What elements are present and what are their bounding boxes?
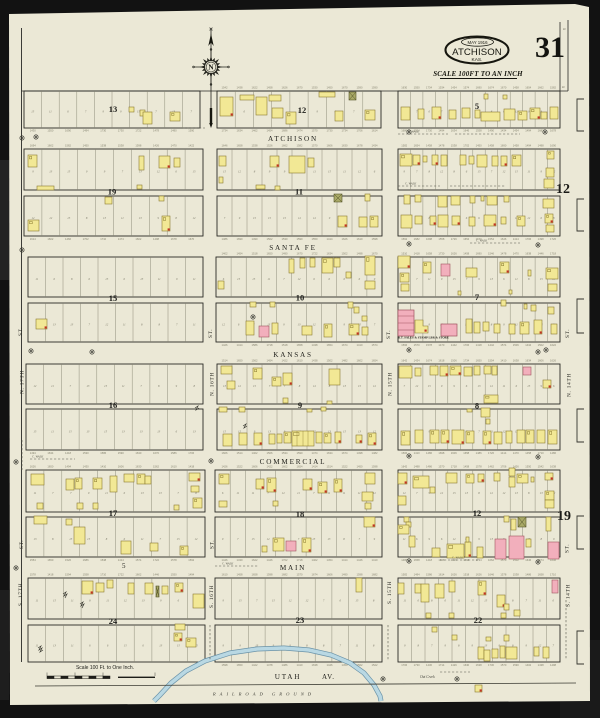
svg-text:12: 12 [358, 170, 362, 174]
svg-text:1654: 1654 [414, 144, 420, 148]
svg-text:1458: 1458 [525, 451, 531, 455]
svg-text:1678: 1678 [357, 144, 363, 148]
svg-text:12: 12 [453, 537, 457, 541]
svg-text:1626: 1626 [476, 573, 482, 577]
svg-text:1730: 1730 [438, 252, 444, 256]
svg-text:1726: 1726 [488, 451, 494, 455]
svg-text:1498: 1498 [463, 558, 469, 562]
svg-text:11: 11 [36, 644, 39, 648]
svg-text:11: 11 [141, 537, 144, 541]
svg-text:1674: 1674 [312, 573, 318, 577]
svg-text:12: 12 [373, 384, 377, 388]
svg-text:18: 18 [296, 509, 305, 519]
svg-text:1530: 1530 [312, 86, 318, 90]
svg-text:1658: 1658 [297, 343, 303, 347]
svg-text:1534: 1534 [282, 451, 288, 455]
svg-text:1486: 1486 [282, 663, 288, 667]
svg-text:1598: 1598 [222, 663, 228, 667]
svg-text:SCALE 100FT TO AN INCH: SCALE 100FT TO AN INCH [433, 70, 523, 78]
svg-text:1410: 1410 [357, 343, 363, 347]
svg-text:1458: 1458 [267, 86, 273, 90]
svg-text:1494: 1494 [83, 129, 89, 133]
svg-text:15: 15 [453, 491, 457, 495]
svg-text:1658: 1658 [252, 573, 258, 577]
svg-text:1730: 1730 [488, 663, 494, 667]
svg-text:1578: 1578 [30, 573, 36, 577]
svg-text:1610: 1610 [222, 573, 228, 577]
svg-text:1638: 1638 [312, 663, 318, 667]
svg-text:1502: 1502 [327, 359, 333, 363]
svg-text:1590: 1590 [297, 451, 303, 455]
svg-text:1486: 1486 [222, 237, 228, 241]
svg-text:1542: 1542 [222, 86, 228, 90]
svg-text:1506: 1506 [401, 451, 407, 455]
svg-text:12: 12 [490, 491, 494, 495]
svg-text:1410: 1410 [372, 558, 378, 562]
svg-text:1650: 1650 [47, 558, 53, 562]
svg-text:1730: 1730 [426, 129, 432, 133]
svg-text:13: 13 [103, 216, 107, 220]
svg-text:1502: 1502 [513, 558, 519, 562]
svg-text:1418: 1418 [476, 343, 482, 347]
svg-text:1590: 1590 [513, 663, 519, 667]
svg-text:1734: 1734 [342, 129, 348, 133]
svg-text:13: 13 [141, 491, 145, 495]
svg-text:1470: 1470 [513, 252, 519, 256]
svg-text:1690: 1690 [476, 252, 482, 256]
svg-text:1586: 1586 [171, 451, 177, 455]
svg-text:1434: 1434 [372, 144, 378, 148]
svg-text:1650: 1650 [237, 663, 243, 667]
svg-text:11: 11 [356, 644, 359, 648]
svg-text:12: 12 [124, 599, 128, 603]
svg-text:1574: 1574 [135, 558, 141, 562]
svg-text:1630: 1630 [342, 144, 348, 148]
svg-text:1574: 1574 [538, 558, 544, 562]
svg-text:1490: 1490 [488, 129, 494, 133]
svg-text:1470: 1470 [513, 451, 519, 455]
svg-text:15: 15 [358, 384, 362, 388]
svg-text:1630: 1630 [135, 465, 141, 469]
svg-text:12: 12 [49, 216, 53, 220]
svg-text:1610: 1610 [297, 359, 303, 363]
svg-text:1578: 1578 [171, 558, 177, 562]
svg-text:1626: 1626 [451, 252, 457, 256]
svg-text:1614: 1614 [30, 237, 36, 241]
svg-text:1438: 1438 [538, 663, 544, 667]
svg-text:1454: 1454 [327, 558, 333, 562]
svg-text:1682: 1682 [282, 573, 288, 577]
svg-text:11: 11 [122, 384, 125, 388]
svg-text:1422: 1422 [267, 465, 273, 469]
svg-text:1710: 1710 [100, 237, 106, 241]
svg-text:1462: 1462 [488, 465, 494, 469]
svg-text:1458: 1458 [426, 144, 432, 148]
svg-text:1430: 1430 [426, 663, 432, 667]
svg-text:1610: 1610 [357, 237, 363, 241]
svg-text:1654: 1654 [525, 86, 531, 90]
svg-text:12: 12 [556, 182, 570, 197]
svg-text:24: 24 [109, 616, 118, 626]
svg-text:1454: 1454 [267, 129, 273, 133]
svg-text:12: 12 [440, 491, 444, 495]
svg-text:22: 22 [474, 615, 483, 625]
svg-text:1402: 1402 [525, 663, 531, 667]
svg-text:13: 13 [122, 430, 126, 434]
svg-text:1490: 1490 [282, 252, 288, 256]
svg-text:1538: 1538 [451, 144, 457, 148]
svg-text:1518: 1518 [252, 252, 258, 256]
svg-text:1510: 1510 [401, 252, 407, 256]
svg-text:1630: 1630 [463, 663, 469, 667]
svg-text:15: 15 [104, 430, 108, 434]
svg-text:ST.: ST. [565, 329, 571, 338]
svg-text:15: 15 [67, 170, 71, 174]
svg-text:11: 11 [295, 187, 303, 197]
svg-text:S. 16TH: S. 16TH [209, 585, 215, 608]
svg-text:KAS.: KAS. [472, 57, 483, 63]
svg-text:13: 13 [53, 644, 57, 648]
svg-text:13: 13 [540, 491, 544, 495]
svg-text:13: 13 [159, 491, 163, 495]
svg-text:1434: 1434 [414, 359, 420, 363]
svg-text:1414: 1414 [327, 237, 333, 241]
svg-text:ST.: ST. [18, 327, 24, 336]
svg-text:ST.: ST. [565, 544, 571, 553]
svg-text:1654: 1654 [372, 359, 378, 363]
svg-text:1442: 1442 [488, 343, 494, 347]
svg-text:12: 12 [527, 216, 531, 220]
svg-text:13: 13 [49, 170, 53, 174]
svg-text:1626: 1626 [342, 237, 348, 241]
svg-text:1402: 1402 [222, 252, 228, 256]
svg-text:1706: 1706 [463, 343, 469, 347]
svg-text:1598: 1598 [372, 237, 378, 241]
svg-text:1722: 1722 [153, 558, 159, 562]
svg-text:1414: 1414 [342, 558, 348, 562]
svg-text:1626: 1626 [451, 573, 457, 577]
svg-text:12: 12 [282, 491, 286, 495]
svg-text:11: 11 [503, 384, 506, 388]
svg-text:1518: 1518 [463, 573, 469, 577]
svg-text:13: 13 [140, 277, 144, 281]
svg-text:N. 15TH: N. 15TH [388, 372, 394, 396]
svg-text:KANSAS: KANSAS [273, 351, 313, 359]
svg-text:1546: 1546 [488, 252, 494, 256]
svg-text:1474: 1474 [118, 237, 124, 241]
svg-text:1422: 1422 [252, 663, 258, 667]
svg-text:11: 11 [121, 216, 124, 220]
svg-text:13: 13 [140, 430, 144, 434]
svg-text:1490: 1490 [252, 237, 258, 241]
svg-text:1506: 1506 [267, 451, 273, 455]
svg-text:1630: 1630 [135, 451, 141, 455]
svg-text:1426: 1426 [222, 465, 228, 469]
svg-text:12: 12 [222, 323, 226, 327]
svg-text:1610: 1610 [171, 465, 177, 469]
svg-text:1550: 1550 [171, 573, 177, 577]
svg-text:1494: 1494 [30, 451, 36, 455]
svg-text:1706: 1706 [500, 465, 506, 469]
svg-text:11: 11 [36, 599, 39, 603]
svg-text:1450: 1450 [83, 144, 89, 148]
svg-text:1530: 1530 [83, 451, 89, 455]
svg-text:S. 17TH: S. 17TH [18, 583, 24, 606]
svg-text:1426: 1426 [222, 343, 228, 347]
svg-text:1658: 1658 [414, 558, 420, 562]
svg-text:RAILROAD GROUND: RAILROAD GROUND [212, 692, 315, 697]
svg-text:S. 15TH: S. 15TH [387, 581, 393, 604]
svg-text:1522: 1522 [372, 663, 378, 667]
svg-text:1670: 1670 [153, 451, 159, 455]
svg-text:1554: 1554 [488, 359, 494, 363]
svg-text:AV.: AV. [322, 673, 335, 681]
svg-text:15: 15 [177, 644, 181, 648]
svg-text:1502: 1502 [538, 343, 544, 347]
svg-text:1650: 1650 [237, 359, 243, 363]
svg-text:1622: 1622 [252, 86, 258, 90]
svg-text:1634: 1634 [47, 451, 53, 455]
svg-text:15: 15 [268, 216, 272, 220]
svg-text:1426: 1426 [451, 663, 457, 667]
svg-text:1434: 1434 [525, 343, 531, 347]
svg-text:1402: 1402 [252, 451, 258, 455]
svg-text:13: 13 [490, 537, 494, 541]
svg-text:1458: 1458 [513, 86, 519, 90]
svg-text:1486: 1486 [550, 451, 556, 455]
svg-text:1446: 1446 [267, 558, 273, 562]
svg-text:11: 11 [106, 599, 109, 603]
svg-text:1526: 1526 [65, 558, 71, 562]
svg-text:1646: 1646 [222, 144, 228, 148]
svg-text:1454: 1454 [451, 86, 457, 90]
svg-text:1706: 1706 [188, 451, 194, 455]
svg-text:1586: 1586 [426, 573, 432, 577]
svg-text:1482: 1482 [342, 359, 348, 363]
svg-text:1486: 1486 [525, 573, 531, 577]
svg-text:1602: 1602 [47, 237, 53, 241]
svg-text:1682: 1682 [372, 573, 378, 577]
svg-text:13: 13 [298, 323, 302, 327]
svg-text:1606: 1606 [327, 144, 333, 148]
svg-text:1454: 1454 [237, 252, 243, 256]
svg-text:1426: 1426 [153, 144, 159, 148]
svg-text:15: 15 [124, 644, 128, 648]
svg-text:1674: 1674 [426, 359, 432, 363]
svg-text:12: 12 [490, 384, 494, 388]
svg-text:1526: 1526 [267, 144, 273, 148]
svg-text:15: 15 [328, 170, 332, 174]
svg-text:1634: 1634 [525, 359, 531, 363]
svg-text:13: 13 [109, 104, 118, 114]
svg-text:1490: 1490 [342, 573, 348, 577]
svg-text:12: 12 [298, 105, 307, 115]
svg-text:1422: 1422 [282, 359, 288, 363]
svg-text:12: 12 [313, 216, 317, 220]
svg-text:1478: 1478 [153, 129, 159, 133]
svg-text:1706: 1706 [525, 237, 531, 241]
svg-text:1558: 1558 [83, 573, 89, 577]
svg-text:15: 15 [252, 277, 256, 281]
svg-text:1658: 1658 [538, 573, 544, 577]
svg-text:15: 15 [272, 599, 276, 603]
svg-text:1450: 1450 [327, 86, 333, 90]
svg-text:12: 12 [415, 384, 419, 388]
svg-text:1470: 1470 [438, 343, 444, 347]
svg-text:1498: 1498 [153, 237, 159, 241]
svg-text:1650: 1650 [47, 465, 53, 469]
svg-text:11: 11 [49, 110, 52, 114]
svg-text:1614: 1614 [438, 573, 444, 577]
svg-text:12: 12 [502, 170, 506, 174]
svg-text:13: 13 [142, 599, 146, 603]
svg-text:12: 12 [502, 430, 506, 434]
svg-text:1662: 1662 [488, 558, 494, 562]
svg-text:1598: 1598 [135, 144, 141, 148]
svg-text:1458: 1458 [237, 573, 243, 577]
svg-text:ATCHISON: ATCHISON [268, 135, 318, 143]
svg-text:1498: 1498 [538, 237, 544, 241]
svg-text:1602: 1602 [135, 573, 141, 577]
svg-text:1618: 1618 [438, 359, 444, 363]
svg-text:1494: 1494 [65, 465, 71, 469]
svg-text:1530: 1530 [282, 237, 288, 241]
svg-text:1498: 1498 [414, 465, 420, 469]
svg-text:1690: 1690 [500, 144, 506, 148]
svg-text:11: 11 [457, 599, 460, 603]
svg-text:12: 12 [403, 491, 407, 495]
svg-text:1566: 1566 [401, 343, 407, 347]
svg-text:15: 15 [283, 216, 287, 220]
svg-text:N. 14TH: N. 14TH [567, 373, 573, 397]
svg-text:1658: 1658 [237, 144, 243, 148]
svg-text:1670: 1670 [342, 86, 348, 90]
svg-text:19: 19 [108, 187, 117, 197]
svg-text:1586: 1586 [252, 343, 258, 347]
svg-text:1446: 1446 [153, 573, 159, 577]
svg-text:1570: 1570 [500, 663, 506, 667]
svg-text:1570: 1570 [297, 573, 303, 577]
svg-text:15: 15 [527, 384, 531, 388]
svg-text:1662: 1662 [282, 144, 288, 148]
svg-text:1590: 1590 [357, 86, 363, 90]
svg-text:12: 12 [238, 384, 242, 388]
svg-text:11: 11 [527, 170, 530, 174]
svg-text:1690: 1690 [65, 129, 71, 133]
svg-text:1590: 1590 [372, 86, 378, 90]
svg-text:UTAH: UTAH [275, 673, 302, 681]
svg-text:1562: 1562 [401, 237, 407, 241]
svg-text:12: 12 [313, 384, 317, 388]
svg-text:1606: 1606 [451, 451, 457, 455]
svg-text:1478: 1478 [500, 252, 506, 256]
svg-text:1734: 1734 [463, 359, 469, 363]
svg-text:1474: 1474 [297, 129, 303, 133]
svg-text:15: 15 [109, 293, 118, 303]
svg-text:1446: 1446 [538, 252, 544, 256]
svg-text:1538: 1538 [118, 144, 124, 148]
svg-text:12: 12 [33, 384, 37, 388]
svg-text:1646: 1646 [500, 237, 506, 241]
svg-text:16: 16 [109, 400, 118, 410]
svg-text:1554: 1554 [30, 558, 36, 562]
svg-text:1446: 1446 [222, 558, 228, 562]
svg-text:1638: 1638 [476, 663, 482, 667]
svg-text:1722: 1722 [312, 252, 318, 256]
svg-text:1486: 1486 [426, 465, 432, 469]
svg-text:1494: 1494 [414, 573, 420, 577]
svg-text:1538: 1538 [100, 558, 106, 562]
svg-text:1702: 1702 [282, 558, 288, 562]
svg-text:1498: 1498 [357, 451, 363, 455]
svg-text:1578: 1578 [426, 343, 432, 347]
svg-text:1554: 1554 [488, 237, 494, 241]
svg-text:15: 15 [105, 277, 109, 281]
svg-text:1426: 1426 [451, 558, 457, 562]
svg-text:C. WALK: C. WALK [222, 562, 234, 566]
svg-text:1570: 1570 [414, 343, 420, 347]
svg-text:1550: 1550 [525, 465, 531, 469]
svg-text:1458: 1458 [513, 144, 519, 148]
svg-text:1710: 1710 [100, 573, 106, 577]
svg-text:1686: 1686 [401, 129, 407, 133]
svg-text:1470: 1470 [171, 144, 177, 148]
svg-text:1418: 1418 [414, 252, 420, 256]
svg-text:15: 15 [53, 599, 57, 603]
svg-text:13: 13 [86, 384, 90, 388]
svg-text:12: 12 [313, 323, 317, 327]
svg-text:12: 12 [267, 537, 271, 541]
svg-text:15: 15 [69, 430, 73, 434]
svg-text:1578: 1578 [500, 573, 506, 577]
svg-text:1598: 1598 [372, 465, 378, 469]
svg-text:1682: 1682 [414, 237, 420, 241]
svg-text:1494: 1494 [525, 144, 531, 148]
svg-text:1542: 1542 [538, 465, 544, 469]
svg-text:1418: 1418 [65, 451, 71, 455]
svg-text:13: 13 [34, 537, 38, 541]
svg-text:1454: 1454 [513, 129, 519, 133]
svg-text:1674: 1674 [488, 86, 494, 90]
svg-text:1538: 1538 [513, 573, 519, 577]
svg-text:12: 12 [502, 491, 506, 495]
svg-text:1670: 1670 [297, 86, 303, 90]
svg-text:15: 15 [237, 277, 241, 281]
svg-text:15: 15 [355, 599, 359, 603]
svg-text:1562: 1562 [252, 359, 258, 363]
svg-text:1562: 1562 [357, 663, 363, 667]
svg-text:1562: 1562 [188, 558, 194, 562]
svg-text:15: 15 [104, 384, 108, 388]
svg-text:1430: 1430 [237, 558, 243, 562]
svg-text:1646: 1646 [488, 573, 494, 577]
svg-text:1718: 1718 [297, 558, 303, 562]
svg-text:1670: 1670 [500, 86, 506, 90]
svg-text:1414: 1414 [118, 558, 124, 562]
svg-text:1654: 1654 [327, 343, 333, 347]
svg-text:15: 15 [515, 170, 519, 174]
svg-text:1734: 1734 [476, 558, 482, 562]
svg-text:N. 17TH: N. 17TH [20, 370, 26, 394]
svg-text:1686: 1686 [282, 129, 288, 133]
svg-text:17: 17 [109, 508, 118, 518]
svg-text:1582: 1582 [401, 144, 407, 148]
svg-text:15: 15 [343, 430, 347, 434]
svg-text:13: 13 [515, 491, 519, 495]
svg-text:1498: 1498 [550, 663, 556, 667]
svg-text:1578: 1578 [476, 465, 482, 469]
svg-text:8: 8 [475, 401, 479, 411]
